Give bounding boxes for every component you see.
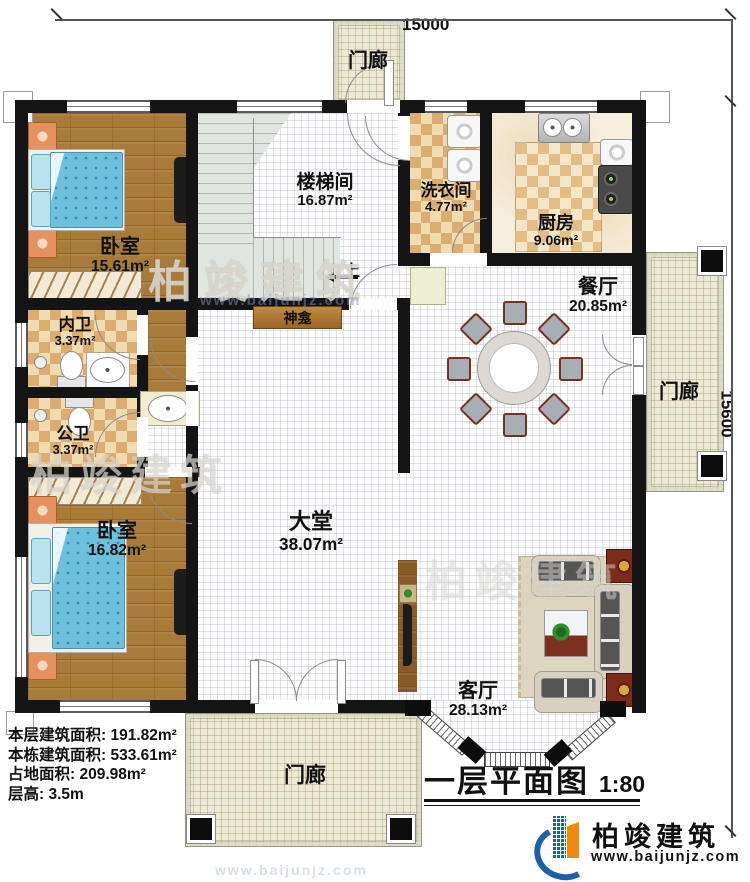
- watermark-url: www.baijunjz.com: [215, 862, 368, 878]
- door-leaf: [633, 366, 644, 395]
- stat-line: 占地面积: 209.98m²: [8, 765, 177, 785]
- dining-chair: [559, 357, 583, 381]
- sofa-cushions: [538, 561, 594, 581]
- door-leaf: [633, 337, 644, 366]
- sink-basin: [543, 118, 562, 137]
- room-label-porch-right: 门廊: [659, 381, 699, 403]
- sink-inner-bath: [90, 357, 125, 383]
- dim-line-right: [731, 19, 733, 838]
- room-name: 卧室: [91, 236, 149, 258]
- title-underline: [424, 799, 640, 802]
- window-stairwell: [237, 100, 322, 113]
- pillow: [31, 590, 51, 636]
- porch-column: [698, 452, 726, 480]
- stat-line: 本层建筑面积: 191.82m²: [8, 726, 177, 746]
- pillow: [31, 538, 51, 584]
- room-name: 门廊: [284, 764, 326, 788]
- room-label-living: 客厅28.13m²: [449, 680, 507, 720]
- room-label-kitchen: 厨房9.06m²: [534, 213, 578, 249]
- stair-railing: [253, 237, 341, 238]
- dining-chair: [447, 357, 471, 381]
- window-laundry: [425, 100, 467, 113]
- plant: [551, 622, 571, 642]
- towel-ring: [34, 356, 47, 369]
- wall-dining-hall: [398, 309, 410, 473]
- stat-line: 本栋建筑面积: 533.61m²: [8, 746, 177, 766]
- title-underline-thin: [424, 805, 640, 806]
- dim-label-top: 15000: [402, 15, 449, 35]
- stair-landing: [198, 253, 253, 303]
- pillow: [31, 154, 51, 190]
- room-label-inner-bath: 内卫3.37m²: [55, 316, 96, 349]
- room-name: 客厅: [449, 680, 507, 702]
- room-name: 楼梯间: [296, 172, 353, 193]
- room-label-bedroom2: 卧室16.82m²: [88, 520, 146, 560]
- kitchen-appliance: [600, 139, 634, 166]
- sofa-cushions: [541, 678, 596, 698]
- dining-table-top: [489, 343, 539, 393]
- dining-chair: [503, 413, 527, 437]
- stair-arrow-head: [325, 272, 334, 282]
- window-public-bath: [15, 423, 28, 457]
- room-name: 门廊: [659, 381, 699, 403]
- room-area: 4.77m²: [421, 200, 472, 215]
- room-name: 内卫: [55, 316, 96, 334]
- opening-bedroom2: [145, 467, 192, 477]
- wall-bedroom1-stair: [186, 113, 198, 298]
- sink-basin: [563, 118, 582, 137]
- room-name: 门廊: [348, 50, 388, 72]
- room-label-bedroom1: 卧室15.61m²: [91, 236, 149, 276]
- dining-cabinet: [410, 267, 446, 305]
- plan-title: 一层平面图1:80: [424, 756, 645, 801]
- opening-kitchen-passage: [430, 253, 487, 266]
- room-area: 20.85m²: [569, 298, 627, 315]
- room-area: 16.87m²: [296, 193, 353, 210]
- room-label-porch-top: 门廊: [348, 50, 388, 72]
- room-area: 28.13m²: [449, 702, 507, 719]
- stair-railing: [253, 118, 254, 238]
- window-bedroom2-south: [60, 700, 150, 713]
- plan-title-text: 一层平面图: [424, 764, 589, 799]
- room-name: 洗衣间: [421, 181, 472, 200]
- stats-block: 本层建筑面积: 191.82m² 本栋建筑面积: 533.61m² 占地面积: …: [8, 726, 177, 805]
- stair-flight-upper: [198, 113, 253, 253]
- floor-plan-canvas: 神龛: [0, 0, 750, 882]
- door-leaf: [250, 660, 259, 704]
- room-area: 38.07m²: [279, 535, 343, 554]
- stair-flight-lower: [253, 237, 340, 303]
- room-name: 公卫: [53, 425, 94, 443]
- room-area: 15.61m²: [91, 258, 149, 275]
- plan-scale: 1:80: [599, 771, 645, 797]
- pillow: [31, 191, 51, 227]
- logo-url: www.baijunjz.com: [591, 849, 740, 865]
- washing-machine: [447, 149, 482, 182]
- tv-bedroom2: [174, 569, 186, 635]
- window-inner-bath: [15, 323, 28, 367]
- room-label-public-bath: 公卫3.37m²: [53, 425, 94, 458]
- sofa-cushions: [600, 591, 620, 671]
- bay-column: [600, 701, 626, 717]
- window-bedroom2: [15, 557, 28, 677]
- door-leaf: [337, 660, 346, 704]
- washing-machine: [447, 115, 482, 148]
- tv-living: [403, 604, 412, 666]
- nightstand: [28, 651, 57, 680]
- burner: [604, 172, 618, 186]
- dining-chair: [503, 301, 527, 325]
- logo-building-orange-icon: [567, 822, 579, 858]
- window-bedroom1: [67, 100, 150, 113]
- decor-shelf: [399, 584, 417, 603]
- opening-main-entry: [255, 700, 338, 713]
- sink-hall-niche: [148, 395, 188, 422]
- dim-label-right: 15600: [717, 390, 737, 437]
- stairs-up-label: 上: [344, 257, 360, 281]
- toilet-bowl: [60, 351, 83, 380]
- stat-line: 层高: 3.5m: [8, 785, 177, 805]
- room-area: 9.06m²: [534, 233, 578, 249]
- porch-column: [187, 815, 215, 843]
- tv-bedroom1: [174, 157, 186, 223]
- room-name: 餐厅: [569, 276, 627, 298]
- room-area: 16.82m²: [88, 542, 146, 559]
- logo-building-blue-icon: [553, 816, 566, 858]
- porch-column: [387, 815, 415, 843]
- nightstand: [28, 229, 57, 258]
- room-name: 卧室: [88, 520, 146, 542]
- burner: [604, 192, 618, 206]
- room-label-dining: 餐厅20.85m²: [569, 276, 627, 316]
- porch-column: [698, 247, 726, 275]
- dim-line-top: [55, 19, 731, 21]
- room-label-porch-bottom: 门廊: [284, 764, 326, 788]
- room-label-stairwell: 楼梯间16.87m²: [296, 172, 353, 210]
- nightstand: [28, 496, 57, 525]
- window-kitchen: [525, 100, 597, 113]
- room-area: 3.37m²: [53, 443, 94, 457]
- room-area: 3.37m²: [55, 334, 96, 348]
- wall-exterior-right: [632, 100, 646, 713]
- nightstand: [28, 122, 57, 151]
- shrine-cabinet: 神龛: [253, 306, 342, 329]
- towel-ring: [34, 409, 47, 422]
- wall-bath-divider: [15, 387, 148, 398]
- shrine-label: 神龛: [284, 308, 312, 328]
- bay-column: [405, 700, 431, 716]
- room-name: 厨房: [534, 213, 578, 233]
- room-label-laundry: 洗衣间4.77m²: [421, 181, 472, 215]
- room-label-hall: 大堂38.07m²: [279, 510, 343, 554]
- opening-niche: [186, 391, 198, 426]
- room-name: 大堂: [279, 510, 343, 535]
- bed-mattress: [50, 152, 123, 228]
